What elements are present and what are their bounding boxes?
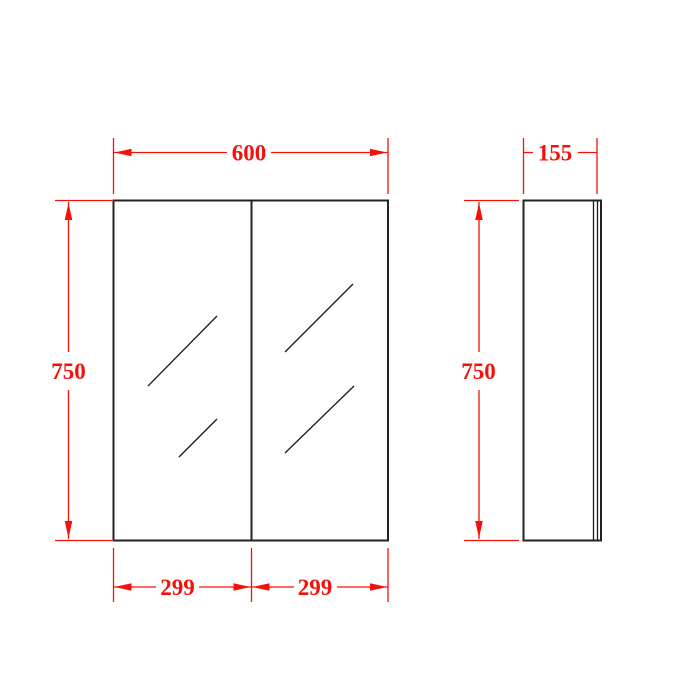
arrow-left-icon: [115, 149, 132, 157]
dimension-front-width: 600: [114, 138, 389, 194]
mirror-hatch-line: [148, 316, 217, 386]
mirror-hatch-line: [285, 284, 353, 352]
dimension-side-height: 750: [461, 201, 519, 541]
arrow-left-icon: [115, 583, 132, 591]
dimension-side-depth: 155: [524, 138, 598, 194]
arrow-right-icon: [370, 149, 387, 157]
arrow-up-icon: [475, 203, 483, 220]
side-view: [524, 201, 602, 541]
arrow-down-icon: [65, 521, 73, 538]
mirror-hatch-line: [179, 419, 217, 457]
dimension-right-door-width: 299: [252, 548, 389, 602]
dimension-label-side-depth: 155: [538, 141, 573, 166]
technical-drawing-canvas: 600 155 750 750: [0, 0, 700, 700]
dimension-left-door-width: 299: [114, 548, 252, 602]
dimension-front-height: 750: [51, 201, 114, 541]
front-view: [114, 201, 389, 541]
dimension-label-front-height: 750: [51, 359, 86, 384]
mirror-hatch-line: [285, 386, 354, 453]
dimension-label-side-height: 750: [461, 359, 496, 384]
side-view-outline: [524, 201, 602, 541]
mirror-cabinet-dimension-drawing: 600 155 750 750: [0, 0, 700, 700]
arrow-up-icon: [65, 203, 73, 220]
dimension-label-front-width: 600: [232, 141, 267, 166]
arrow-right-icon: [370, 583, 387, 591]
arrow-left-icon: [253, 583, 270, 591]
dimension-label-right-door: 299: [298, 575, 333, 600]
dimension-label-left-door: 299: [160, 575, 195, 600]
arrow-right-icon: [234, 583, 251, 591]
arrow-down-icon: [475, 521, 483, 538]
